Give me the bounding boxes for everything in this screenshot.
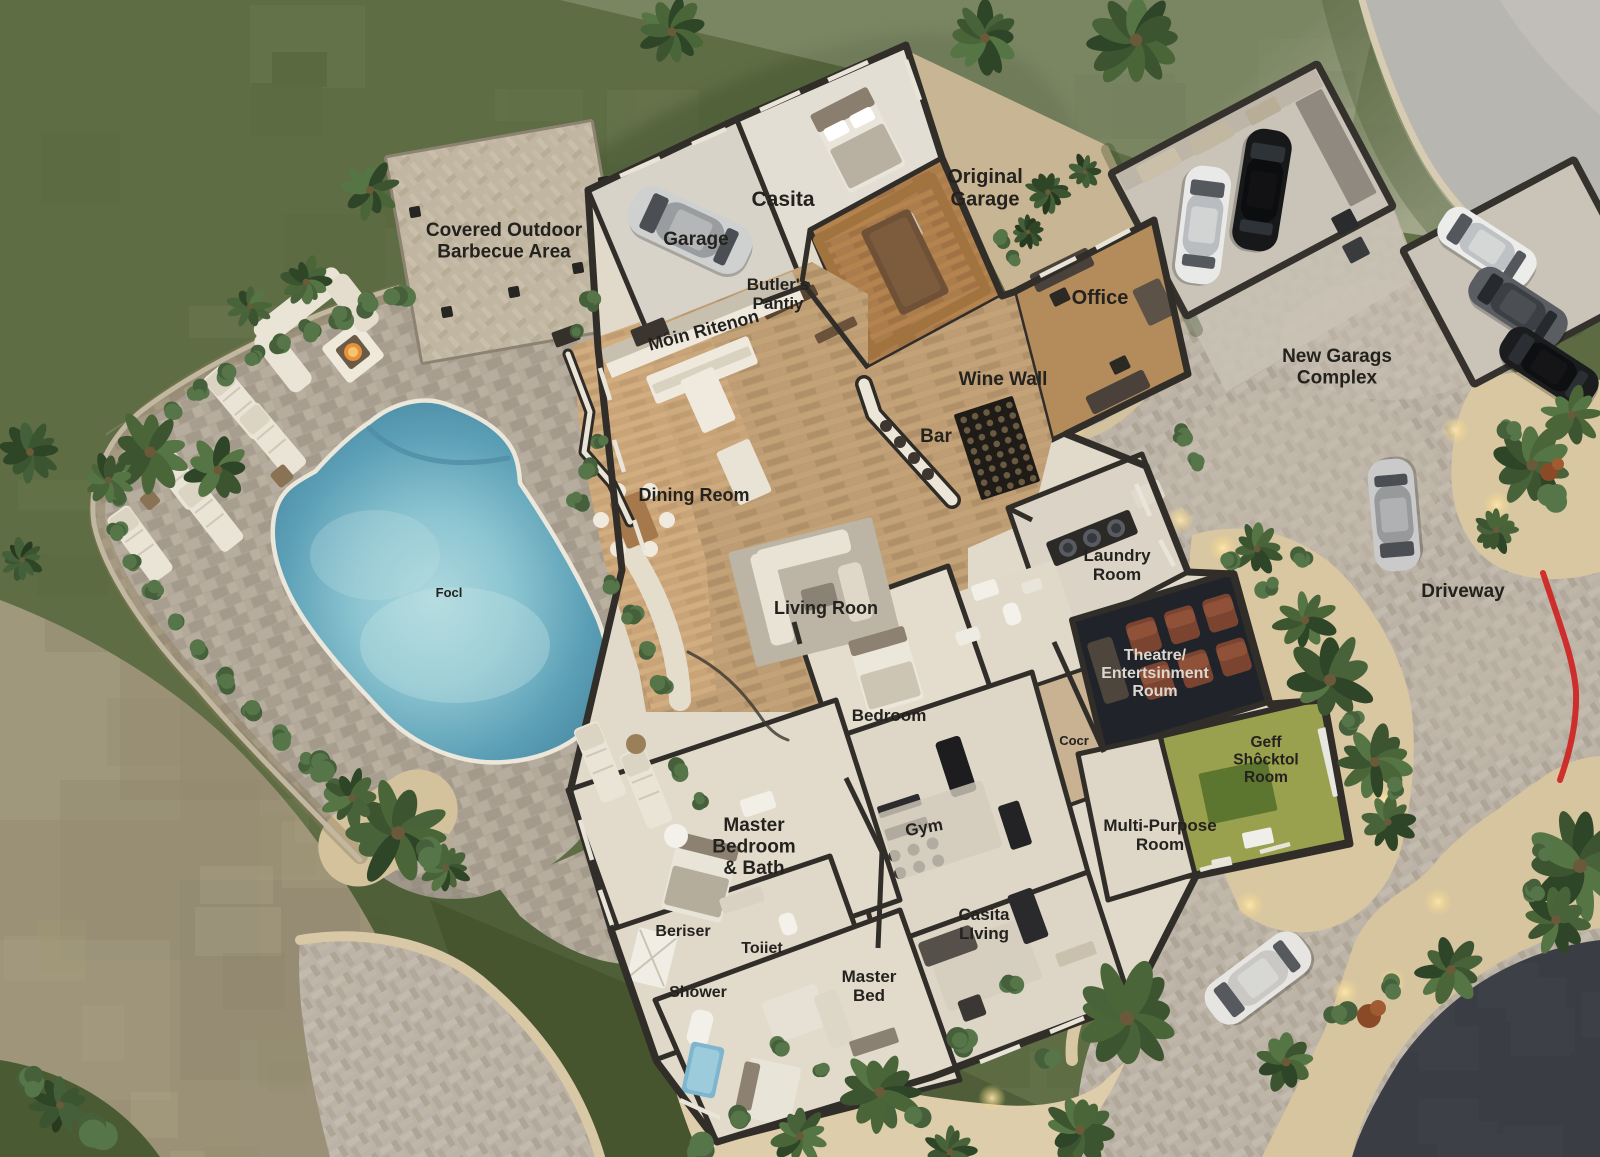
svg-text:New GaragsComplex: New GaragsComplex — [1282, 346, 1392, 389]
svg-text:Living Roon: Living Roon — [774, 598, 878, 618]
svg-text:Cocr: Cocr — [1059, 733, 1089, 748]
svg-text:Focl: Focl — [436, 585, 463, 600]
svg-text:CasitaLIving: CasitaLIving — [958, 905, 1010, 943]
svg-text:Wine Wall: Wine Wall — [959, 369, 1048, 390]
svg-text:Shower: Shower — [669, 984, 727, 1001]
svg-text:Bedroom: Bedroom — [852, 706, 927, 725]
svg-text:LaundryRoom: LaundryRoom — [1083, 546, 1151, 584]
svg-text:Toiiet: Toiiet — [741, 940, 783, 957]
svg-text:Covered OutdoorBarbecue Area: Covered OutdoorBarbecue Area — [426, 220, 583, 263]
svg-text:Casita: Casita — [751, 188, 814, 211]
svg-text:Office: Office — [1072, 287, 1129, 309]
svg-text:Dining Reom: Dining Reom — [639, 485, 750, 505]
svg-text:Driveway: Driveway — [1421, 581, 1505, 602]
svg-text:Beriser: Beriser — [655, 923, 710, 940]
svg-text:Bar: Bar — [920, 426, 952, 447]
svg-text:MasterBedroom& Bath: MasterBedroom& Bath — [712, 815, 795, 879]
svg-text:OriginalGarage: OriginalGarage — [947, 166, 1023, 211]
svg-text:Garage: Garage — [663, 229, 728, 250]
